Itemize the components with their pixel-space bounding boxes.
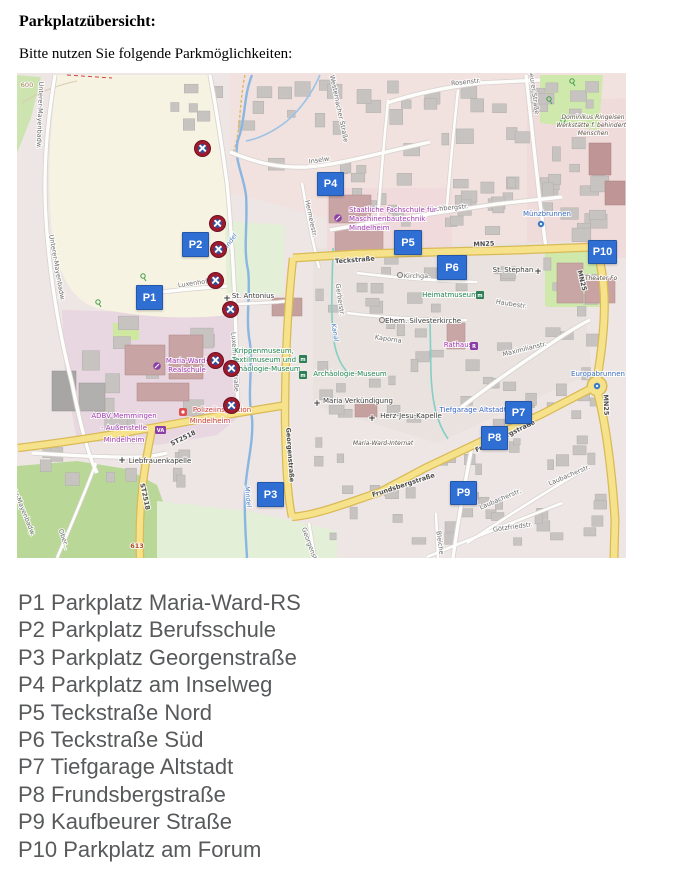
svg-text:R: R — [472, 344, 476, 350]
no-stopping-sign-icon — [207, 352, 224, 369]
map-marker-p6: P6 — [437, 255, 467, 280]
road-ref: 613 — [130, 542, 144, 550]
poi-label: Menschen — [578, 130, 609, 137]
chapel-label: Liebfrauenkapelle — [129, 457, 192, 465]
no-stopping-sign-icon — [209, 215, 226, 232]
parking-list-item: P9 Kaufbeurer Straße — [18, 808, 301, 835]
parking-list-item: P10 Parkplatz am Forum — [18, 836, 301, 863]
office-label: ADBV Memmingen — [91, 412, 156, 420]
svg-text:m: m — [300, 373, 305, 379]
parking-list-item: P7 Tiefgarage Altstadt — [18, 753, 301, 780]
townhall-icon: R — [470, 342, 478, 350]
svg-text:m: m — [300, 357, 305, 363]
school-label: Realschule — [168, 366, 206, 374]
road-ref: MN25 — [473, 239, 495, 248]
church-label: Ehem. Silvesterkirche — [385, 317, 461, 325]
map-marker-p8: P8 — [481, 426, 508, 450]
police-label: Mindelheim — [190, 417, 231, 425]
museum-icon: m — [299, 355, 307, 363]
poi-label: Theater Fo — [585, 275, 618, 282]
map-canvas: 600 Unterer-Mayenbadw. Unterer-Mayenbadw… — [17, 73, 626, 558]
fountain-icon — [594, 383, 600, 389]
map-marker-p5: P5 — [394, 230, 422, 255]
office-label: - Außenstelle — [101, 424, 147, 432]
museum-icon: m — [299, 371, 307, 379]
no-stopping-sign-icon — [223, 360, 240, 377]
school-label: Maria-Ward- — [166, 357, 209, 365]
church-cross-icon: + — [368, 414, 376, 424]
document-page: Parkplatzübersicht: Bitte nutzen Sie fol… — [0, 0, 675, 870]
school-icon — [334, 214, 342, 222]
school-icon — [153, 362, 161, 370]
page-title: Parkplatzübersicht: — [19, 13, 156, 31]
parking-list-item: P6 Teckstraße Süd — [18, 726, 301, 753]
church-label: St. Antonius — [232, 292, 275, 300]
map-marker-p3: P3 — [257, 482, 284, 507]
office-icon: VA — [155, 426, 166, 434]
page-subtitle: Bitte nutzen Sie folgende Parkmöglichkei… — [19, 46, 292, 63]
parking-list-item: P2 Parkplatz Berufsschule — [18, 616, 301, 643]
church-cross-icon: + — [534, 267, 542, 277]
fountain-label: Münzbrunnen — [523, 210, 571, 218]
parking-list-item: P1 Parkplatz Maria-Ward-RS — [18, 589, 301, 616]
poi-label: Dominikus Ringeisen — [561, 114, 624, 121]
no-stopping-sign-icon — [207, 272, 224, 289]
map-marker-p10: P10 — [588, 240, 617, 264]
museum-label: Heimatmuseum — [422, 291, 478, 299]
map-image: 600 Unterer-Mayenbadw. Unterer-Mayenbadw… — [17, 73, 626, 558]
map-marker-p2: P2 — [182, 232, 209, 257]
parking-list-item: P3 Parkplatz Georgenstraße — [18, 644, 301, 671]
museum-label: Krippenmuseum, — [234, 347, 294, 355]
parking-list-item: P5 Teckstraße Nord — [18, 699, 301, 726]
church-cross-icon: + — [118, 456, 126, 466]
school-label: Maschinenbautechnik — [349, 215, 426, 223]
museum-label: Archäologie-Museum — [313, 370, 387, 378]
no-stopping-sign-icon — [223, 397, 240, 414]
church-label: Maria Verkündigung — [323, 397, 393, 405]
office-label: Mindelheim — [104, 436, 145, 444]
map-marker-p4: P4 — [317, 172, 344, 196]
no-stopping-sign-icon — [194, 140, 211, 157]
poi-label: Maria-Ward-Internat — [353, 440, 414, 447]
svg-text:m: m — [477, 293, 482, 299]
church-label: Herz-Jesu-Kapelle — [380, 412, 442, 420]
parking-list: P1 Parkplatz Maria-Ward-RSP2 Parkplatz B… — [18, 589, 301, 863]
svg-text:VA: VA — [157, 428, 165, 434]
school-label: Mindelheim — [349, 224, 390, 232]
poi-label: Werkstätte f. behinderte — [556, 122, 626, 129]
church-label: St. Stephan — [493, 266, 534, 274]
map-marker-p7: P7 — [505, 401, 532, 424]
police-label: Polizeiinspektion — [193, 406, 251, 414]
school-label: Staatliche Fachschule für — [349, 206, 437, 214]
map-marker-p9: P9 — [450, 481, 477, 505]
parking-list-item: P8 Frundsbergstraße — [18, 781, 301, 808]
road-ref: MN25 — [602, 394, 611, 416]
church-cross-icon: + — [313, 399, 321, 409]
police-icon — [179, 408, 187, 416]
townhall-label: Rathaus — [444, 341, 473, 349]
fountain-label: Europabrunnen — [571, 370, 625, 378]
museum-icon: m — [476, 291, 484, 299]
parking-garage-label: Tiefgarage Altstadt — [439, 406, 507, 414]
no-stopping-sign-icon — [210, 241, 227, 258]
elevation-label: 600 — [21, 81, 33, 89]
no-stopping-sign-icon — [222, 301, 239, 318]
street-label: Kirchga. — [404, 272, 430, 280]
parking-list-item: P4 Parkplatz am Inselweg — [18, 671, 301, 698]
fountain-icon — [538, 221, 544, 227]
museum-label: Textilmuseum und — [231, 356, 296, 364]
map-marker-p1: P1 — [136, 285, 163, 310]
